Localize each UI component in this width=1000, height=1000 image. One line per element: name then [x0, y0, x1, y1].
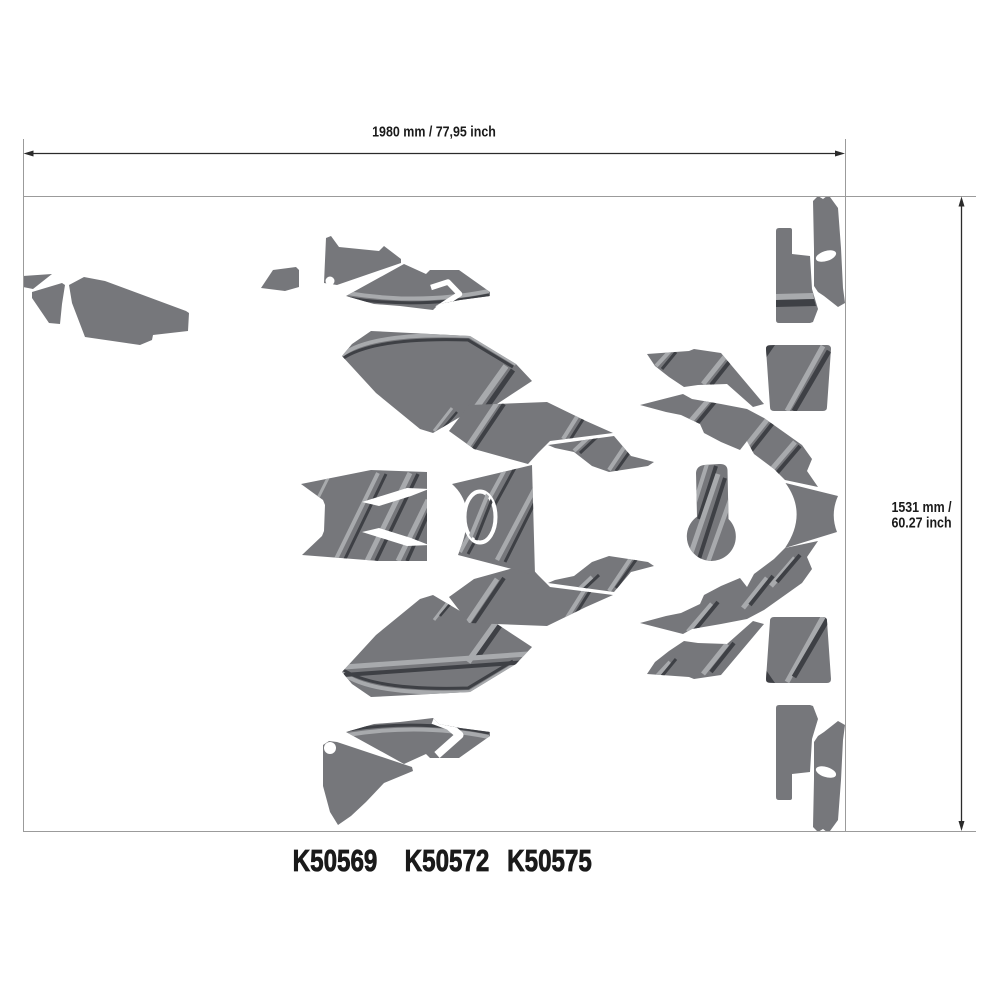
- svg-text:60.27 inch: 60.27 inch: [891, 514, 951, 530]
- svg-text:K50575: K50575: [507, 843, 592, 878]
- svg-text:1531 mm /: 1531 mm /: [891, 499, 951, 515]
- svg-text:K50572: K50572: [405, 843, 490, 878]
- svg-text:1980 mm / 77,95 inch: 1980 mm / 77,95 inch: [372, 123, 496, 139]
- svg-text:K50569: K50569: [293, 843, 378, 878]
